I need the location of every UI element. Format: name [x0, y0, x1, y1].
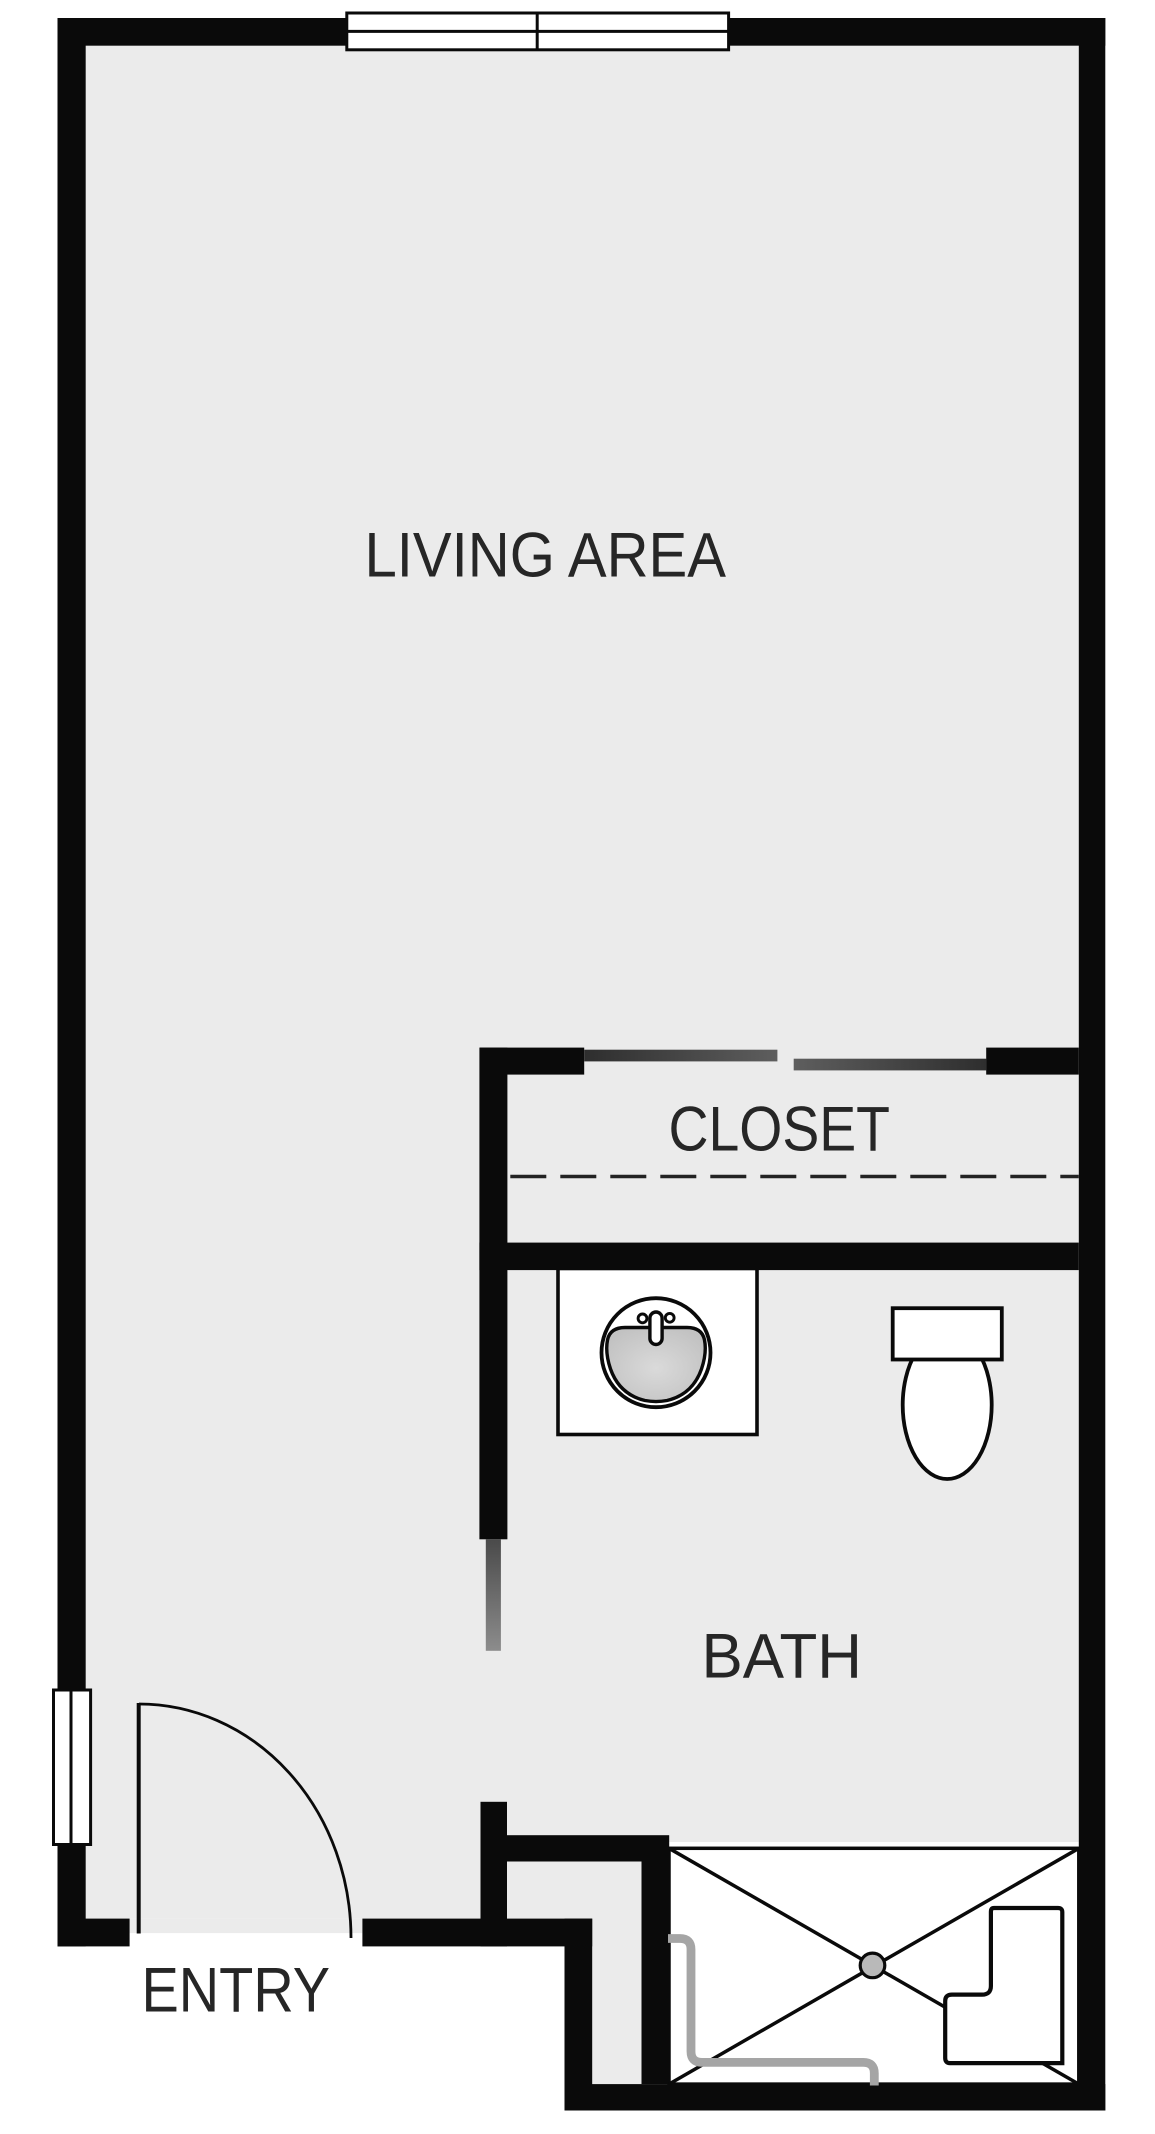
svg-text:ENTRY: ENTRY: [142, 1955, 331, 2025]
svg-text:CLOSET: CLOSET: [669, 1095, 891, 1165]
svg-text:BATH: BATH: [702, 1622, 863, 1692]
svg-text:LIVING AREA: LIVING AREA: [365, 520, 727, 590]
